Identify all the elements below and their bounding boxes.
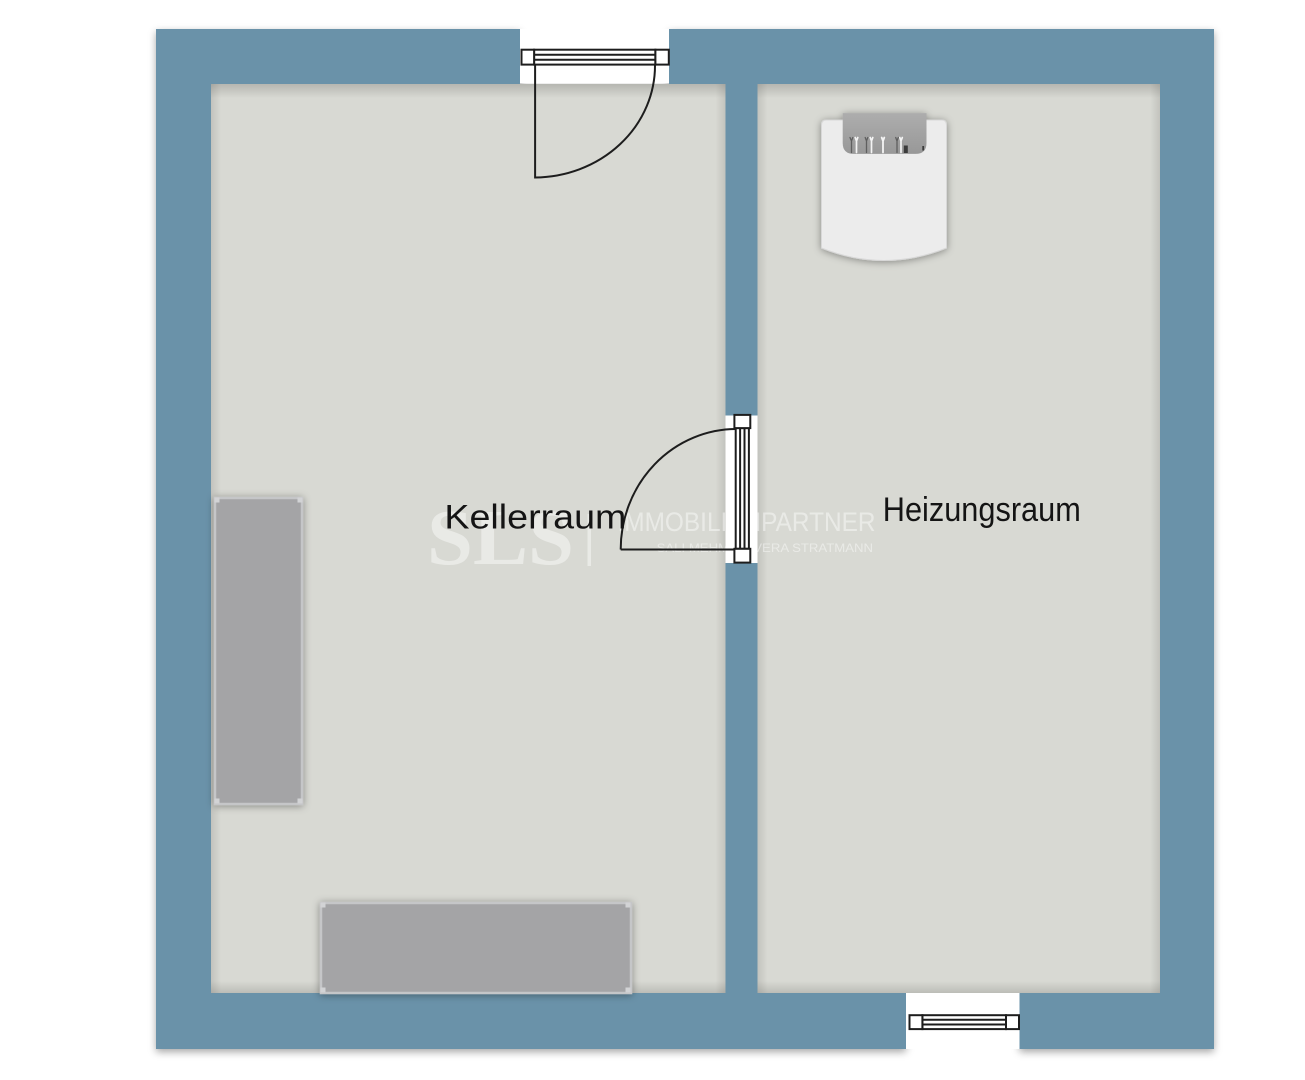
svg-text:Heizungsraum: Heizungsraum [883,491,1081,529]
svg-text:Kellerraum: Kellerraum [444,498,626,536]
